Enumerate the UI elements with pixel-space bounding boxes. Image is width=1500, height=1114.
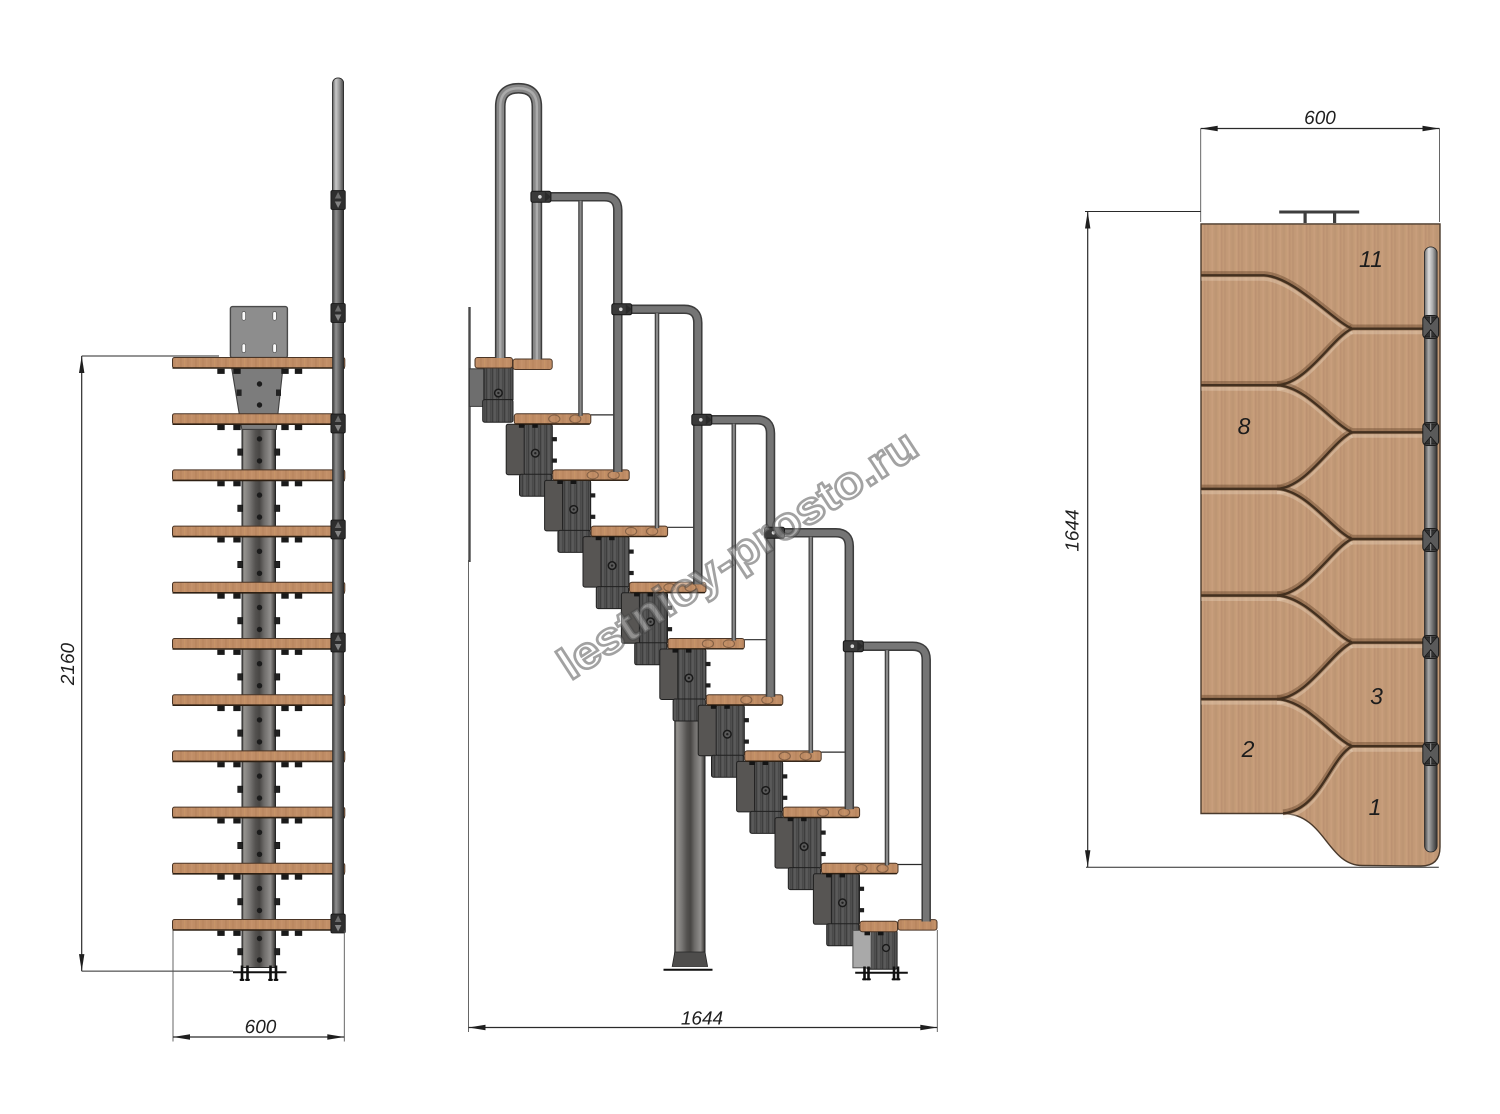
svg-text:600: 600 bbox=[245, 1017, 277, 1038]
svg-text:1644: 1644 bbox=[681, 1009, 723, 1030]
svg-text:1644: 1644 bbox=[1063, 509, 1084, 551]
svg-text:11: 11 bbox=[1359, 246, 1383, 272]
svg-text:8: 8 bbox=[1238, 413, 1251, 439]
svg-text:600: 600 bbox=[1304, 108, 1336, 129]
svg-text:3: 3 bbox=[1370, 683, 1383, 709]
svg-text:1: 1 bbox=[1369, 794, 1382, 820]
svg-text:2: 2 bbox=[1241, 736, 1255, 762]
svg-text:2160: 2160 bbox=[58, 642, 79, 686]
